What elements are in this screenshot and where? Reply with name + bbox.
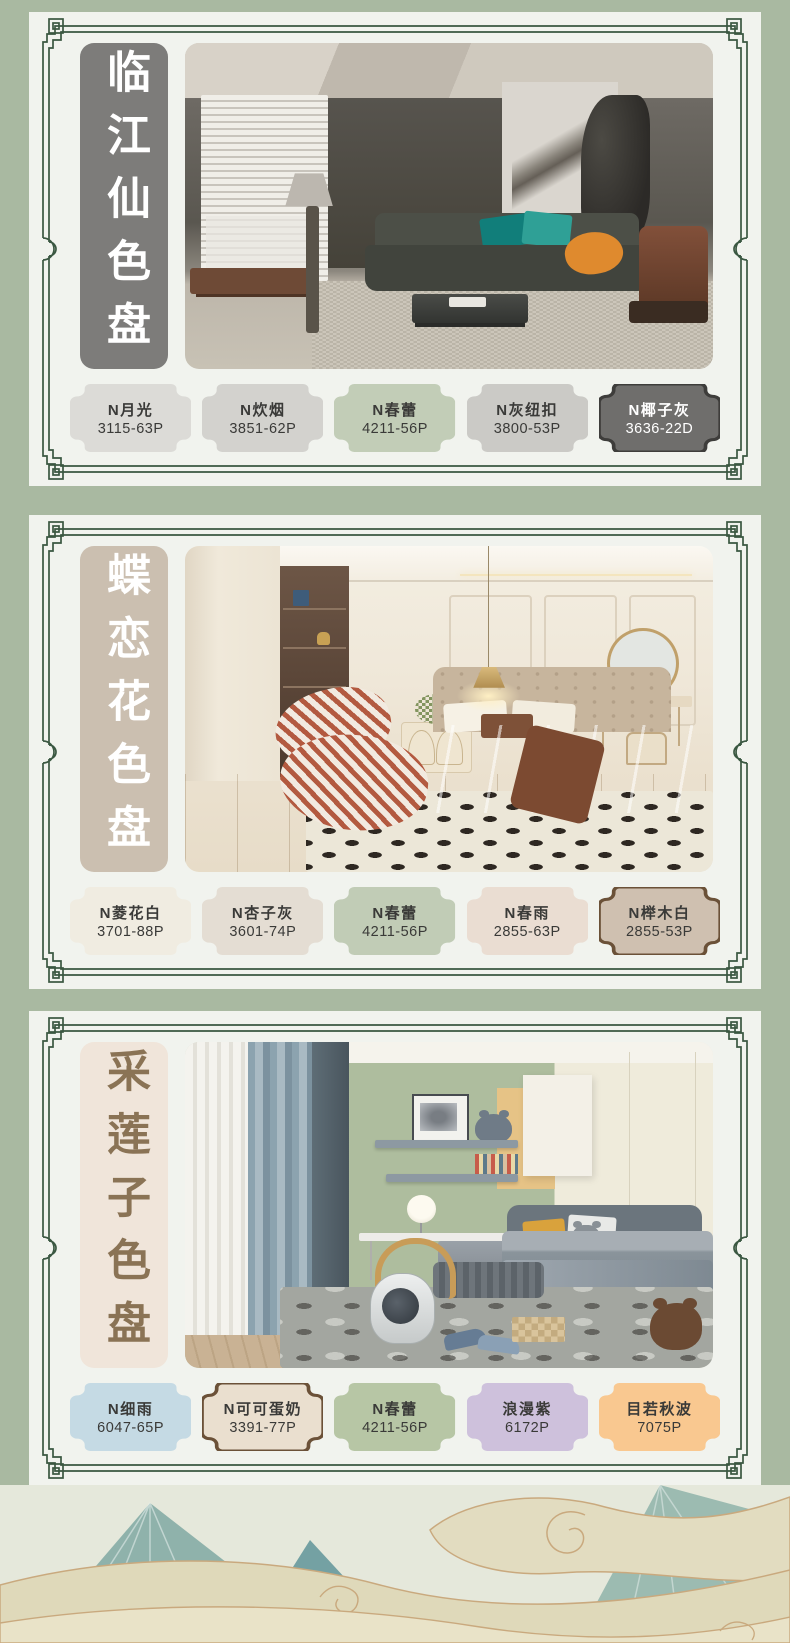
- swatch-name: N春蕾: [372, 902, 417, 923]
- color-swatch: 目若秋波 7075P: [599, 1383, 720, 1451]
- photo-chair-base: [629, 301, 708, 324]
- photo-table-book: [449, 297, 486, 307]
- photo-shelf-decor: [317, 632, 330, 645]
- photo-led-strip: [460, 574, 692, 576]
- palette-card-linjiangxian: 临江仙色盘: [29, 12, 761, 486]
- photo-teddy-bear: [650, 1303, 703, 1350]
- color-swatch: N杏子灰 3601-74P: [202, 887, 323, 955]
- swatch-code: 6172P: [505, 1420, 549, 1436]
- swatch-code: 2855-63P: [494, 924, 561, 940]
- color-swatch: N可可蛋奶 3391-77P: [202, 1383, 323, 1451]
- swatch-row: N细雨 6047-65P N可可蛋奶 3391-77P N春蕾 4211-56P: [70, 1383, 720, 1451]
- photo-toy-blocks: [512, 1317, 565, 1341]
- photo-leather-chair: [639, 226, 708, 311]
- swatch-code: 6047-65P: [97, 1420, 164, 1436]
- photo-lamp-pole: [306, 206, 319, 333]
- photo-desk-leg: [370, 1241, 372, 1280]
- color-swatch: N炊烟 3851-62P: [202, 384, 323, 452]
- swatch-row: N月光 3115-63P N炊烟 3851-62P N春蕾 4211-56P: [70, 384, 720, 452]
- swatch-code: 3115-63P: [98, 421, 164, 437]
- palette-title: 采莲子色盘: [102, 1048, 146, 1363]
- photo-desk-lamp: [407, 1195, 436, 1223]
- photo-rug: [280, 1287, 713, 1369]
- palette-title-plaque: 蝶恋花色盘: [80, 546, 168, 872]
- color-swatch: N春蕾 4211-56P: [334, 887, 455, 955]
- color-swatch: N春蕾 4211-56P: [334, 384, 455, 452]
- photo-white-panel: [523, 1075, 592, 1176]
- photo-books: [475, 1154, 517, 1174]
- swatch-row: N菱花白 3701-88P N杏子灰 3601-74P N春蕾 4211-56P: [70, 887, 720, 955]
- swatch-name: N灰纽扣: [496, 399, 558, 420]
- photo-wardrobe: [185, 546, 280, 781]
- swatch-name: N春蕾: [372, 1398, 417, 1419]
- color-swatch: N灰纽扣 3800-53P: [467, 384, 588, 452]
- room-photo-kids-room: [185, 1042, 713, 1368]
- swatch-code: 4211-56P: [362, 924, 428, 940]
- photo-wood-bench: [190, 268, 317, 294]
- swatch-name: N细雨: [108, 1398, 153, 1419]
- color-swatch: N菱花白 3701-88P: [70, 887, 191, 955]
- photo-desk: [359, 1233, 512, 1241]
- photo-shelf-decor: [293, 590, 309, 606]
- poster-page: 临江仙色盘: [0, 0, 790, 1643]
- color-swatch: N月光 3115-63P: [70, 384, 191, 452]
- swatch-name: N月光: [108, 399, 153, 420]
- swatch-code: 7075P: [637, 1420, 681, 1436]
- swatch-name: N春蕾: [372, 399, 417, 420]
- palette-title: 蝶恋花色盘: [102, 552, 146, 867]
- photo-pendant-cord: [488, 546, 490, 670]
- color-swatch: N椰子灰 3636-22D: [599, 384, 720, 452]
- palette-card-cailianzi: 采莲子色盘: [29, 1011, 761, 1485]
- swatch-name: N可可蛋奶: [224, 1398, 302, 1419]
- swatch-name: N椰子灰: [628, 399, 690, 420]
- palette-title: 临江仙色盘: [102, 49, 146, 364]
- swatch-name: N炊烟: [240, 399, 285, 420]
- room-photo-living-room: [185, 43, 713, 369]
- swatch-name: N榉木白: [628, 902, 690, 923]
- color-swatch: N细雨 6047-65P: [70, 1383, 191, 1451]
- photo-shelf: [283, 647, 345, 649]
- swatch-code: 2855-53P: [626, 924, 693, 940]
- photo-picture-art: [420, 1103, 457, 1131]
- palette-title-plaque: 临江仙色盘: [80, 43, 168, 369]
- swatch-name: 目若秋波: [626, 1398, 692, 1419]
- swatch-code: 3636-22D: [626, 421, 694, 437]
- swatch-code: 3701-88P: [97, 924, 164, 940]
- photo-ceiling: [185, 43, 713, 98]
- photo-sheer-curtain: [185, 1042, 254, 1345]
- palette-title-plaque: 采莲子色盘: [80, 1042, 168, 1368]
- swatch-code: 4211-56P: [362, 421, 428, 437]
- photo-shelf: [283, 608, 345, 610]
- room-photo-bedroom: [185, 546, 713, 872]
- swatch-name: N春雨: [505, 902, 550, 923]
- color-swatch: 浪漫紫 6172P: [467, 1383, 588, 1451]
- photo-teal-pillow: [521, 210, 572, 247]
- swatch-code: 3601-74P: [229, 924, 296, 940]
- palette-card-dielianhua: 蝶恋花色盘: [29, 515, 761, 989]
- swatch-name: 浪漫紫: [502, 1398, 552, 1419]
- photo-window-light: [206, 216, 317, 275]
- swatch-code: 4211-56P: [362, 1420, 428, 1436]
- color-swatch: N榉木白 2855-53P: [599, 887, 720, 955]
- swatch-name: N菱花白: [100, 902, 162, 923]
- swatch-code: 3391-77P: [229, 1420, 296, 1436]
- color-swatch: N春蕾 4211-56P: [334, 1383, 455, 1451]
- photo-floating-shelf: [386, 1174, 518, 1182]
- swatch-name: N杏子灰: [232, 902, 294, 923]
- wave-pattern-illustration: [0, 1485, 790, 1643]
- color-swatch: N春雨 2855-63P: [467, 887, 588, 955]
- swatch-code: 3851-62P: [229, 421, 296, 437]
- photo-floating-shelf: [375, 1140, 518, 1148]
- swatch-code: 3800-53P: [494, 421, 561, 437]
- photo-plush-toy: [475, 1114, 512, 1143]
